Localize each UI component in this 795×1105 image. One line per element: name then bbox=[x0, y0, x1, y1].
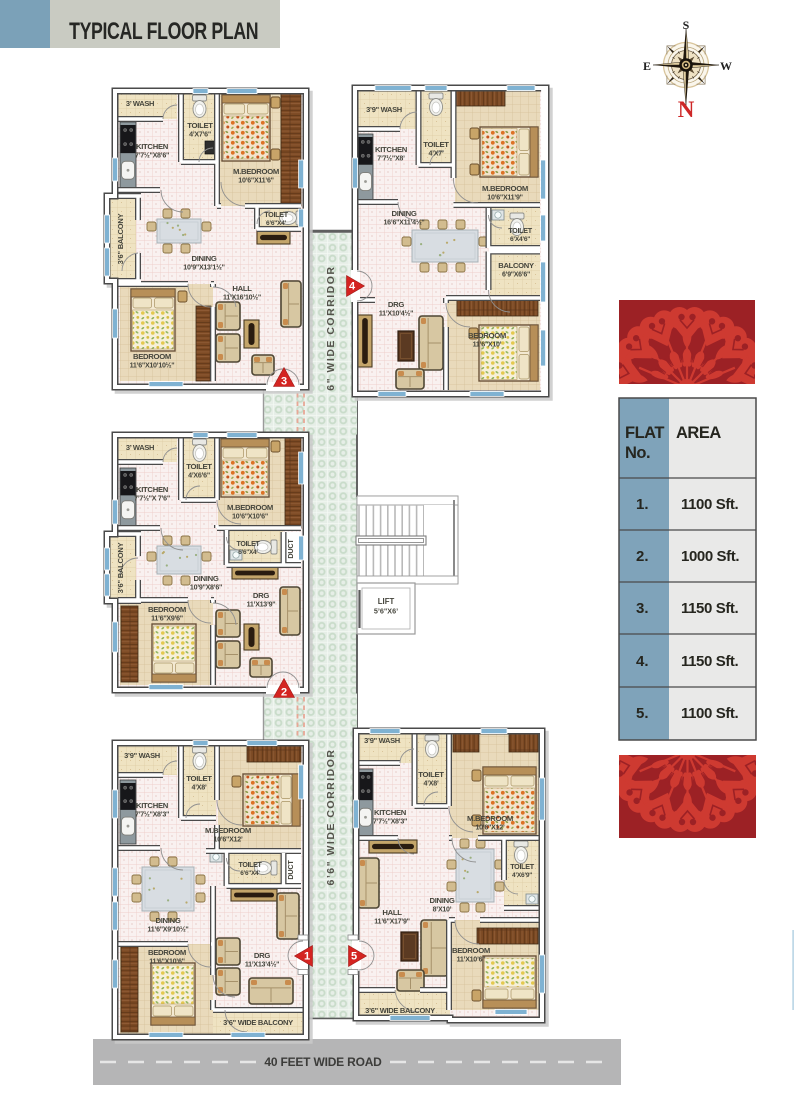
svg-text:M.BEDROOM: M.BEDROOM bbox=[227, 503, 273, 512]
svg-text:W: W bbox=[720, 59, 732, 73]
svg-text:4’X7’: 4’X7’ bbox=[428, 150, 443, 158]
svg-text:1150 Sft.: 1150 Sft. bbox=[681, 600, 739, 617]
svg-text:4.: 4. bbox=[636, 653, 649, 670]
svg-text:TOILET: TOILET bbox=[186, 462, 212, 471]
svg-text:3’6" WIDE BALCONY: 3’6" WIDE BALCONY bbox=[223, 1018, 293, 1027]
svg-text:KITCHEN: KITCHEN bbox=[374, 808, 407, 817]
svg-text:6’6"X4’: 6’6"X4’ bbox=[266, 220, 287, 227]
svg-text:11’X13’9": 11’X13’9" bbox=[247, 601, 276, 609]
svg-text:6’6" WIDE CORRIDOR: 6’6" WIDE CORRIDOR bbox=[325, 749, 337, 886]
svg-text:2.: 2. bbox=[636, 548, 649, 565]
svg-text:S: S bbox=[683, 18, 690, 32]
svg-text:1: 1 bbox=[304, 951, 310, 963]
svg-text:4’X8’: 4’X8’ bbox=[191, 784, 206, 792]
svg-text:6’6"X4’: 6’6"X4’ bbox=[240, 870, 260, 877]
svg-text:10’6"X10’6": 10’6"X10’6" bbox=[232, 513, 268, 521]
svg-text:11’X16’10½": 11’X16’10½" bbox=[223, 294, 261, 302]
svg-text:10’6"X11’9": 10’6"X11’9" bbox=[487, 194, 522, 202]
svg-text:FLAT: FLAT bbox=[625, 424, 664, 442]
svg-text:16’6"X11’4½": 16’6"X11’4½" bbox=[384, 219, 425, 227]
svg-text:TOILET: TOILET bbox=[508, 226, 533, 235]
svg-text:DINING: DINING bbox=[155, 916, 180, 925]
svg-text:DINING: DINING bbox=[429, 896, 454, 905]
svg-text:11’6"X17’9": 11’6"X17’9" bbox=[374, 918, 409, 926]
svg-text:40 FEET WIDE ROAD: 40 FEET WIDE ROAD bbox=[264, 1055, 382, 1069]
svg-text:DUCT: DUCT bbox=[286, 539, 295, 559]
svg-text:11’6"X9’10½": 11’6"X9’10½" bbox=[148, 926, 189, 934]
svg-text:6’9"X6’6": 6’9"X6’6" bbox=[502, 272, 530, 279]
svg-text:BALCONY: BALCONY bbox=[498, 261, 534, 270]
svg-text:11’6"X10’10½": 11’6"X10’10½" bbox=[130, 362, 175, 370]
svg-text:TOILET: TOILET bbox=[187, 121, 213, 130]
svg-text:11’X13’4½": 11’X13’4½" bbox=[245, 961, 279, 969]
svg-text:4’X8’: 4’X8’ bbox=[423, 780, 438, 788]
svg-text:6’6"X4’: 6’6"X4’ bbox=[238, 549, 258, 556]
svg-text:11’6"X9’6": 11’6"X9’6" bbox=[151, 615, 183, 623]
svg-text:11’6"X10’: 11’6"X10’ bbox=[473, 341, 502, 349]
svg-text:3’9" WASH: 3’9" WASH bbox=[124, 751, 160, 760]
svg-text:TOILET: TOILET bbox=[423, 140, 449, 149]
svg-text:7’7½"X8’3": 7’7½"X8’3" bbox=[135, 811, 169, 819]
svg-text:BEDROOM: BEDROOM bbox=[452, 946, 490, 955]
svg-text:3’ WASH: 3’ WASH bbox=[126, 443, 154, 452]
svg-text:TOILET: TOILET bbox=[510, 862, 535, 871]
svg-text:KITCHEN: KITCHEN bbox=[136, 485, 169, 494]
svg-text:10’6"X11’6": 10’6"X11’6" bbox=[238, 177, 273, 185]
svg-text:AREA: AREA bbox=[676, 424, 721, 442]
svg-text:E: E bbox=[643, 59, 651, 73]
svg-text:6’X4’6": 6’X4’6" bbox=[510, 236, 530, 243]
svg-text:DINING: DINING bbox=[191, 254, 216, 263]
svg-text:BEDROOM: BEDROOM bbox=[468, 331, 506, 340]
svg-text:4’X6’6": 4’X6’6" bbox=[188, 472, 210, 480]
svg-text:M.BEDROOM: M.BEDROOM bbox=[467, 814, 513, 823]
svg-text:4’X7’6": 4’X7’6" bbox=[189, 131, 211, 139]
svg-text:DRG: DRG bbox=[254, 951, 271, 960]
svg-text:1150 Sft.: 1150 Sft. bbox=[681, 653, 739, 670]
svg-text:7’7½"X8’3": 7’7½"X8’3" bbox=[373, 818, 407, 826]
svg-text:6’6" WIDE CORRIDOR: 6’6" WIDE CORRIDOR bbox=[325, 266, 337, 403]
svg-text:DINING: DINING bbox=[193, 574, 218, 583]
svg-text:HALL: HALL bbox=[232, 284, 252, 293]
svg-text:3’9" WASH: 3’9" WASH bbox=[364, 736, 400, 745]
svg-text:10’9"X8’6": 10’9"X8’6" bbox=[190, 584, 222, 592]
svg-text:5.: 5. bbox=[636, 705, 649, 722]
svg-text:TYPICAL FLOOR PLAN: TYPICAL FLOOR PLAN bbox=[69, 18, 258, 46]
svg-text:1100 Sft.: 1100 Sft. bbox=[681, 496, 739, 513]
svg-text:BEDROOM: BEDROOM bbox=[148, 948, 186, 957]
svg-text:N: N bbox=[678, 97, 695, 122]
svg-text:8’X10’: 8’X10’ bbox=[433, 906, 452, 914]
svg-text:HALL: HALL bbox=[382, 908, 402, 917]
svg-text:5: 5 bbox=[351, 951, 357, 963]
svg-text:10’6"X12’: 10’6"X12’ bbox=[475, 824, 504, 832]
svg-text:7’7½"X8’: 7’7½"X8’ bbox=[377, 155, 405, 163]
svg-text:4’X6’9": 4’X6’9" bbox=[512, 872, 532, 879]
svg-text:M.BEDROOM: M.BEDROOM bbox=[482, 184, 528, 193]
svg-text:TOILET: TOILET bbox=[237, 541, 261, 548]
svg-text:1000 Sft.: 1000 Sft. bbox=[681, 548, 739, 565]
svg-text:BEDROOM: BEDROOM bbox=[148, 605, 186, 614]
svg-text:5’6"X6’: 5’6"X6’ bbox=[374, 607, 398, 616]
svg-text:3’6" WIDE BALCONY: 3’6" WIDE BALCONY bbox=[365, 1006, 435, 1015]
svg-text:TOILET: TOILET bbox=[186, 774, 212, 783]
svg-text:DUCT: DUCT bbox=[286, 860, 295, 880]
svg-text:DRG: DRG bbox=[388, 300, 405, 309]
svg-text:DRG: DRG bbox=[253, 591, 270, 600]
svg-text:7’7½"X 7’6": 7’7½"X 7’6" bbox=[134, 495, 170, 503]
svg-text:KITCHEN: KITCHEN bbox=[136, 142, 169, 151]
svg-text:7’7½"X8’6": 7’7½"X8’6" bbox=[135, 152, 169, 160]
svg-text:4: 4 bbox=[349, 281, 356, 293]
svg-text:3’ WASH: 3’ WASH bbox=[126, 99, 154, 108]
svg-text:3.: 3. bbox=[636, 600, 649, 617]
svg-text:TOILET: TOILET bbox=[418, 770, 444, 779]
svg-text:3: 3 bbox=[281, 376, 287, 388]
svg-text:3’6" BALCONY: 3’6" BALCONY bbox=[116, 213, 125, 264]
svg-text:KITCHEN: KITCHEN bbox=[375, 145, 408, 154]
svg-text:1100 Sft.: 1100 Sft. bbox=[681, 705, 739, 722]
svg-text:TOILET: TOILET bbox=[239, 862, 263, 869]
svg-text:10’9"X13’1½": 10’9"X13’1½" bbox=[183, 264, 224, 272]
svg-text:3’9" WASH: 3’9" WASH bbox=[366, 105, 402, 114]
svg-text:11’6"X10’6": 11’6"X10’6" bbox=[149, 958, 184, 966]
svg-text:TOILET: TOILET bbox=[264, 210, 289, 219]
svg-text:11’X10’4½": 11’X10’4½" bbox=[379, 310, 413, 318]
svg-text:No.: No. bbox=[625, 444, 650, 462]
svg-text:M.BEDROOM: M.BEDROOM bbox=[205, 826, 251, 835]
svg-text:11’X10’6": 11’X10’6" bbox=[457, 956, 486, 964]
svg-text:BEDROOM: BEDROOM bbox=[133, 352, 171, 361]
svg-text:10’6"X12’: 10’6"X12’ bbox=[213, 836, 242, 844]
svg-text:LIFT: LIFT bbox=[378, 597, 395, 606]
svg-text:DINING: DINING bbox=[391, 209, 416, 218]
svg-text:3’6" BALCONY: 3’6" BALCONY bbox=[116, 542, 125, 593]
svg-text:KITCHEN: KITCHEN bbox=[136, 801, 169, 810]
svg-text:2: 2 bbox=[281, 687, 287, 699]
svg-text:1.: 1. bbox=[636, 496, 649, 513]
svg-text:M.BEDROOM: M.BEDROOM bbox=[233, 167, 279, 176]
